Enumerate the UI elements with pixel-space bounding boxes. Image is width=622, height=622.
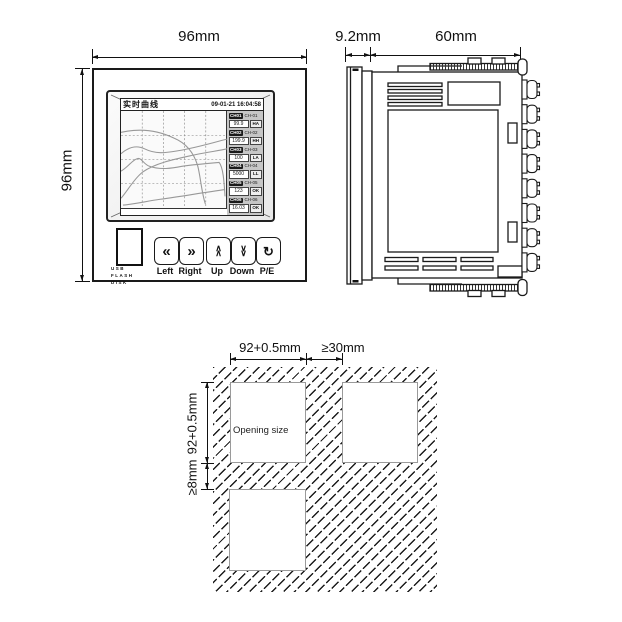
channel-value: 5000 [229, 170, 249, 179]
channel-id-badge: CH03 [229, 147, 244, 153]
channel-id-badge: CH02 [229, 130, 244, 136]
opening-height-dim-arrow [207, 382, 208, 463]
front-height-label: 96mm [59, 141, 76, 201]
bottom-mounting-clamp [398, 278, 527, 297]
dim-tick [201, 382, 214, 383]
channel-row: CH05CH-05 123OK [229, 180, 262, 196]
down-button: ∨ ∨ [231, 237, 256, 265]
channel-status: HH [250, 137, 261, 146]
screen-title: 实时曲线 [123, 99, 159, 110]
usb-slot [116, 228, 143, 266]
channel-tag: CH-04 [245, 164, 258, 169]
opening-width-label: 92+0.5mm [225, 340, 315, 355]
trend-curves [121, 111, 227, 208]
channel-value: 123 [229, 187, 249, 196]
panel-cutout-2 [342, 382, 418, 463]
side-bezel [347, 67, 362, 284]
lcd-screen: 实时曲线 09-01-21 16:04:58 [120, 98, 264, 216]
channel-status: LA [250, 154, 261, 163]
panel-cutout-3 [229, 489, 306, 571]
page-enter-button: ↻ [256, 237, 281, 265]
dimension-drawing: 96mm 96mm 实时曲线 09-01-21 16:04:58 [0, 0, 622, 622]
left-arrow-icon: « [162, 244, 170, 259]
channel-value: 100 [229, 154, 249, 163]
channel-panel: CH01CH-01 99.9HA CH02CH-02 199.9HH CH03C… [227, 111, 263, 215]
up-button: ∧ ∧ [206, 237, 231, 265]
dim-tick [92, 49, 93, 64]
right-arrow-icon: » [187, 244, 195, 259]
dim-tick [342, 353, 343, 365]
channel-row: CH04CH-04 5000LL [229, 163, 262, 179]
horizontal-gap-dim-arrow [306, 359, 342, 360]
vertical-gap-dim-arrow [207, 463, 208, 489]
channel-tag: CH-06 [245, 198, 258, 203]
dim-tick [75, 68, 90, 69]
channel-status: HA [250, 120, 261, 129]
front-height-dim-arrow [82, 69, 83, 281]
channel-id-badge: CH04 [229, 164, 244, 170]
channel-value: 16.03 [229, 204, 249, 213]
recorder-side-view [330, 25, 545, 300]
channel-value: 199.9 [229, 137, 249, 146]
dim-tick [201, 489, 214, 490]
dim-tick [306, 49, 307, 64]
side-flange [362, 71, 372, 280]
opening-width-dim-arrow [230, 359, 306, 360]
channel-id-badge: CH01 [229, 113, 244, 119]
channel-status: OK [250, 187, 261, 196]
side-window [508, 222, 517, 242]
channel-status: LL [250, 170, 261, 179]
side-bottom-block [498, 266, 522, 277]
loop-arrow-icon: ↻ [263, 245, 274, 258]
dim-tick [201, 463, 214, 464]
dim-tick [230, 353, 231, 365]
horizontal-gap-label: ≥30mm [317, 340, 369, 355]
channel-tag: CH-01 [245, 114, 258, 119]
panel-cutout-1 [230, 382, 306, 463]
screen-timestamp: 09-01-21 16:04:58 [211, 102, 261, 108]
down-chevrons-icon: ∨ ∨ [240, 246, 247, 256]
channel-row: CH06CH-06 16.03OK [229, 197, 262, 213]
opening-size-label: Opening size [233, 425, 305, 436]
trend-plot [121, 111, 227, 208]
front-width-label: 96mm [167, 28, 231, 45]
channel-row: CH03CH-03 100LA [229, 147, 262, 163]
channel-tag: CH-05 [245, 181, 258, 186]
dim-tick [306, 353, 307, 365]
usb-flash-disk-label: USB FLASH DISK [111, 266, 151, 286]
channel-id-badge: CH05 [229, 181, 244, 187]
channel-tag: CH-03 [245, 148, 258, 153]
up-chevrons-icon: ∧ ∧ [215, 246, 222, 256]
screen-titlebar: 实时曲线 09-01-21 16:04:58 [121, 99, 263, 111]
channel-tag: CH-02 [245, 131, 258, 136]
recorder-front-panel: 实时曲线 09-01-21 16:04:58 [92, 68, 307, 282]
channel-status: OK [250, 204, 261, 213]
plot-status-strip [121, 208, 227, 215]
left-button: « [154, 237, 179, 265]
screen-bezel: 实时曲线 09-01-21 16:04:58 [106, 90, 275, 222]
side-window [508, 123, 517, 143]
vertical-gap-label: ≥8mm [185, 453, 200, 503]
terminal-blocks [522, 80, 540, 272]
dim-tick [75, 281, 90, 282]
side-label-plate [448, 82, 500, 105]
side-center-panel [388, 110, 498, 252]
right-button: » [179, 237, 204, 265]
pe-button-label: P/E [251, 266, 283, 276]
front-width-dim-arrow [92, 57, 307, 58]
channel-id-badge: CH06 [229, 198, 244, 204]
channel-row: CH02CH-02 199.9HH [229, 130, 262, 146]
channel-row: CH01CH-01 99.9HA [229, 113, 262, 129]
channel-value: 99.9 [229, 120, 249, 129]
